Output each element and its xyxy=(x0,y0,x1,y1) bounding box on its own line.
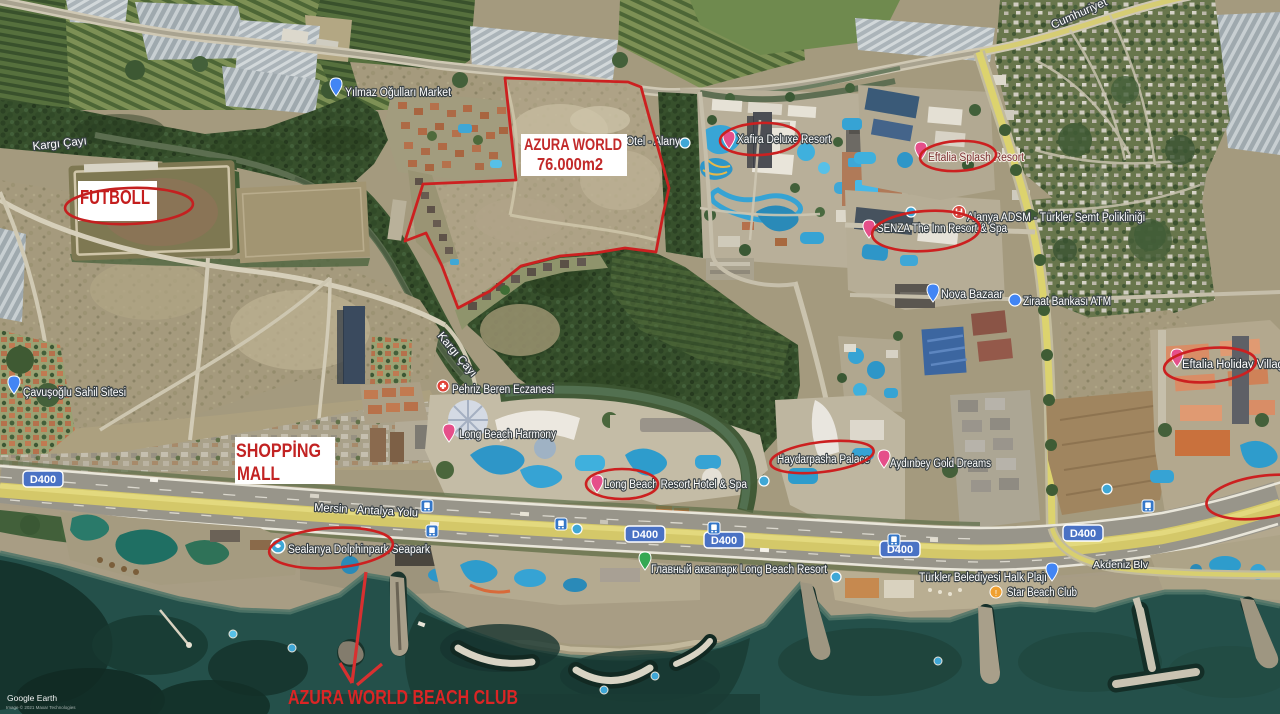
svg-text:Çavuşoğlu Sahil Sitesi: Çavuşoğlu Sahil Sitesi xyxy=(23,387,126,399)
svg-text:Alanya ADSM - Türkler Semt Pol: Alanya ADSM - Türkler Semt Polikliniği xyxy=(967,212,1145,224)
svg-text:Google Earth: Google Earth xyxy=(7,693,57,703)
svg-text:Pehriz Beren Eczanesi: Pehriz Beren Eczanesi xyxy=(452,384,554,396)
svg-text:Xafira Deluxe Resort: Xafira Deluxe Resort xyxy=(737,134,832,146)
svg-text:MALL: MALL xyxy=(237,464,280,485)
svg-text:Главный аквапарк Long Beach Re: Главный аквапарк Long Beach Resort xyxy=(651,564,828,576)
svg-text:D400: D400 xyxy=(1070,528,1096,540)
svg-text:D400: D400 xyxy=(30,474,56,486)
svg-text:AZURA WORLD: AZURA WORLD xyxy=(524,136,622,154)
svg-text:Eftalia Holiday Village: Eftalia Holiday Village xyxy=(1182,359,1280,371)
svg-text:Image © 2021 Maxar Technologie: Image © 2021 Maxar Technologies xyxy=(6,704,76,710)
svg-text:Eftalia Splash Resort: Eftalia Splash Resort xyxy=(928,152,1025,164)
svg-text:Star Beach Club: Star Beach Club xyxy=(1007,587,1077,599)
svg-text:D400: D400 xyxy=(711,535,737,547)
svg-text:Yılmaz Oğulları Market: Yılmaz Oğulları Market xyxy=(345,87,452,99)
svg-text:!: ! xyxy=(995,589,997,598)
svg-text:Aydınbey Gold Dreams: Aydınbey Gold Dreams xyxy=(890,458,991,470)
svg-text:Akdeniz Blv: Akdeniz Blv xyxy=(1093,559,1149,571)
svg-text:FUTBOLL: FUTBOLL xyxy=(80,187,150,209)
svg-text:Nova Bazaar: Nova Bazaar xyxy=(941,289,1003,301)
svg-text:Türkler Belediyesi Halk Plajı: Türkler Belediyesi Halk Plajı xyxy=(919,572,1047,584)
svg-text:SENZA The Inn Resort & Spa: SENZA The Inn Resort & Spa xyxy=(877,223,1008,235)
svg-text:Ziraat Bankası ATM: Ziraat Bankası ATM xyxy=(1023,296,1111,308)
svg-text:Sealanya Dolphinpark Seapark: Sealanya Dolphinpark Seapark xyxy=(288,544,430,556)
svg-text:SHOPPİNG: SHOPPİNG xyxy=(236,441,321,462)
svg-text:Long Beach Harmony: Long Beach Harmony xyxy=(459,429,556,441)
svg-text:D400: D400 xyxy=(632,529,658,541)
svg-text:76.000m2: 76.000m2 xyxy=(537,154,603,174)
svg-text:Long Beach Resort Hotel & Spa: Long Beach Resort Hotel & Spa xyxy=(604,479,748,491)
svg-text:AZURA WORLD BEACH CLUB: AZURA WORLD BEACH CLUB xyxy=(288,687,518,709)
